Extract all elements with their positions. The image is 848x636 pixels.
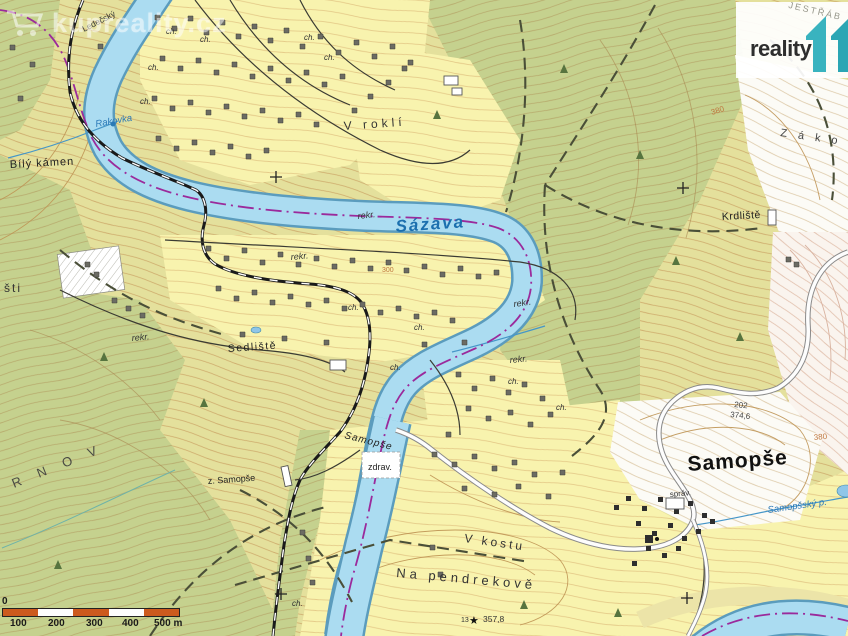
label-trig-id: 13 <box>461 617 469 624</box>
scale-zero: 0 <box>2 597 202 607</box>
label-rekr: rekr. <box>357 209 376 221</box>
scale-bar-segments <box>2 608 180 617</box>
label-partial-sti: šti <box>4 281 22 295</box>
scale-label: 400 <box>122 618 139 629</box>
reality-logo-mark-icon <box>804 12 848 74</box>
map-canvas[interactable]: Sázava Rakovka Samopšský p. Samopše Samo… <box>0 0 848 636</box>
label-elev-380-b: 380 <box>813 432 828 442</box>
label-ch: ch. <box>414 323 425 332</box>
scale-bar: 0 100 200 300 400 500 m <box>2 597 202 629</box>
scale-label: 100 <box>10 618 27 629</box>
label-elev-300: 300 <box>382 267 394 274</box>
label-ch: ch. <box>200 35 211 44</box>
label-ch: ch. <box>508 377 519 386</box>
label-sprav: správ. <box>669 488 691 499</box>
label-zdrav: zdrav. <box>368 462 392 472</box>
label-ch: ch. <box>140 97 151 106</box>
label-ch: ch. <box>556 403 567 412</box>
label-trig-elev: 357,8 <box>483 614 505 624</box>
scale-labels: 100 200 300 400 500 m <box>2 617 202 629</box>
label-ch: ch. <box>148 63 159 72</box>
scale-label: 300 <box>86 618 103 629</box>
label-rekr: rekr. <box>131 331 149 343</box>
label-road-point-id: 202 <box>734 400 749 410</box>
label-rekr: rekr. <box>509 353 527 365</box>
label-krdliste: Krdliště <box>722 209 762 223</box>
map-screenshot: Sázava Rakovka Samopšský p. Samopše Samo… <box>0 0 848 636</box>
pond-sedliste <box>251 327 261 333</box>
church-dot <box>655 537 659 541</box>
label-ch: ch. <box>304 33 315 42</box>
label-ch: ch. <box>390 363 401 372</box>
scale-label: 200 <box>48 618 65 629</box>
reality-logo-text: reality <box>750 36 811 62</box>
label-ch: ch. <box>166 27 177 36</box>
label-ch: ch. <box>292 599 303 608</box>
label-ch: ch. <box>348 303 359 312</box>
label-rekr: rekr. <box>290 250 308 262</box>
label-ch: ch. <box>324 53 335 62</box>
trig-star-icon: ★ <box>469 615 479 627</box>
scale-label: 500 m <box>154 618 182 629</box>
